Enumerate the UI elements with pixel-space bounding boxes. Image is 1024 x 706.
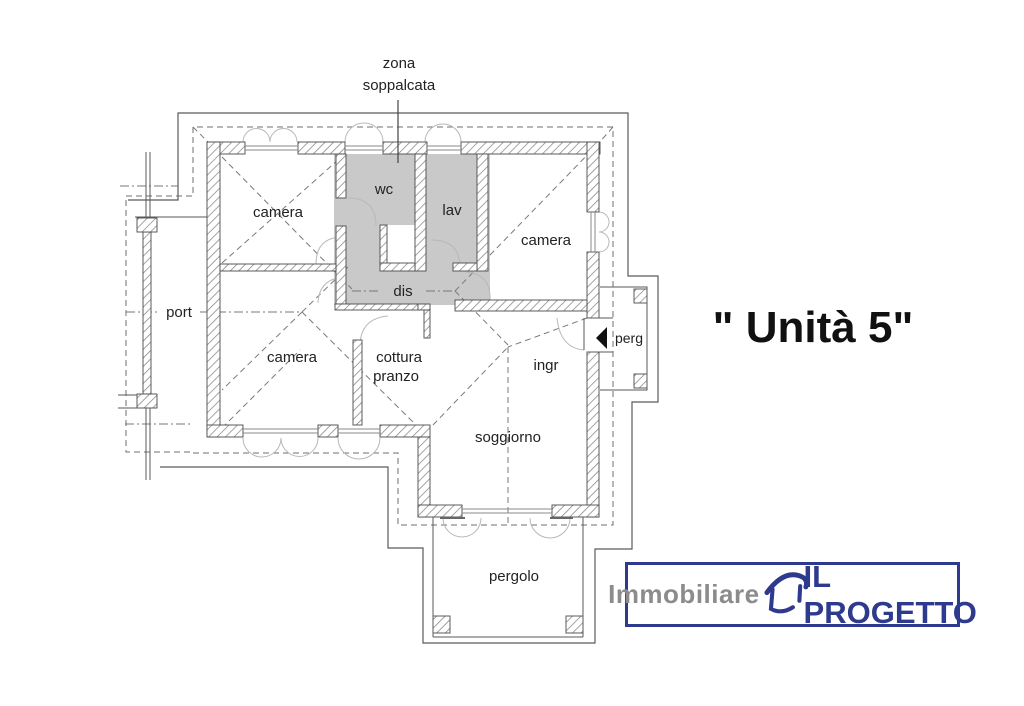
entrance-arrow-icon (596, 327, 607, 349)
unit-title: " Unità 5" (698, 303, 928, 353)
label-cottura-line2: pranzo (373, 368, 419, 385)
label-dis: dis (393, 283, 412, 300)
label-camera-nw: camera (253, 204, 304, 221)
agency-logo: Immobiliare IL PROGETTO (625, 562, 960, 627)
label-camera-w: camera (267, 349, 318, 366)
logo-name-text: IL PROGETTO (804, 559, 977, 631)
label-camera-e: camera (521, 232, 572, 249)
label-ingr: ingr (533, 357, 558, 374)
label-perg: perg (615, 330, 643, 346)
label-cottura-line1: cottura (376, 349, 423, 366)
logo-prefix-text: Immobiliare (608, 579, 759, 610)
label-lav: lav (442, 202, 462, 219)
label-pergolo: pergolo (489, 568, 539, 585)
floorplan-page: zona soppalcata camera wc lav camera dis… (0, 0, 1024, 706)
label-zona-line1: zona (383, 55, 416, 72)
label-soggiorno: soggiorno (475, 429, 541, 446)
label-wc: wc (374, 181, 394, 198)
wc-recess (387, 225, 415, 265)
label-zona-line2: soppalcata (363, 77, 436, 94)
label-port: port (166, 304, 193, 321)
